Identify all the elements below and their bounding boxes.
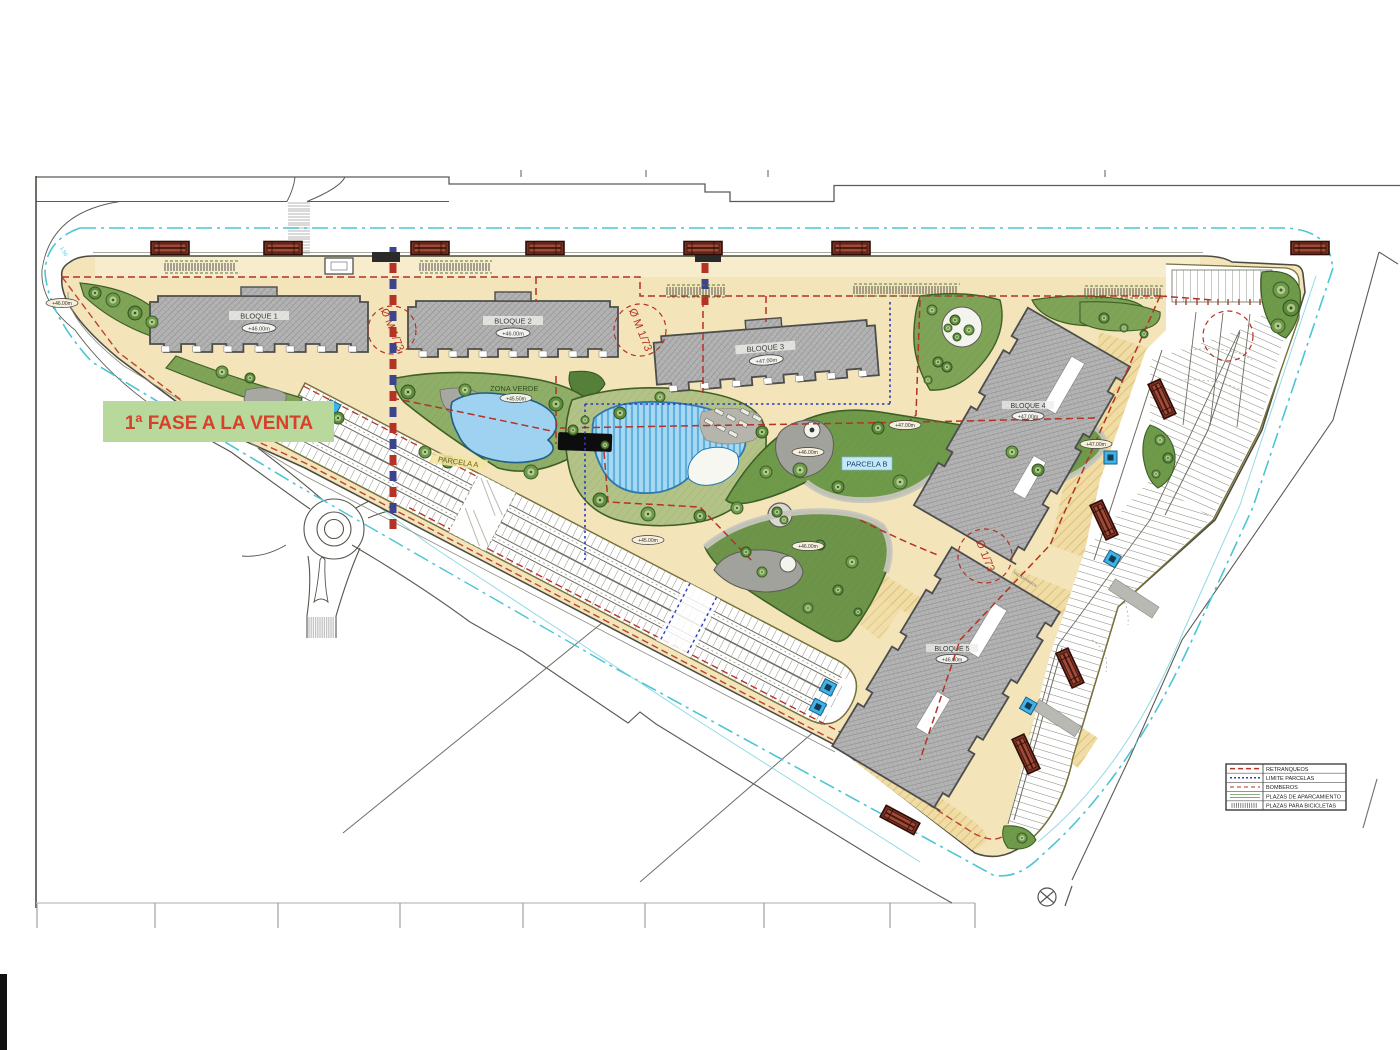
svg-text:+45.00m: +45.00m xyxy=(638,538,658,544)
svg-text:+46.00m: +46.00m xyxy=(52,301,72,307)
svg-text:BLOQUE 2: BLOQUE 2 xyxy=(494,317,532,326)
svg-text:RETRANQUEOS: RETRANQUEOS xyxy=(1266,767,1309,773)
svg-text:LIMITE PARCELAS: LIMITE PARCELAS xyxy=(1266,776,1315,782)
svg-text:BOMBEROS: BOMBEROS xyxy=(1266,785,1298,791)
svg-text:+47.00m: +47.00m xyxy=(895,423,915,429)
svg-text:BLOQUE 4: BLOQUE 4 xyxy=(1010,403,1045,410)
svg-text:+47.00m: +47.00m xyxy=(1086,442,1106,448)
svg-text:+46.00m: +46.00m xyxy=(798,544,818,550)
svg-text:+45.50m: +45.50m xyxy=(506,397,526,403)
svg-text:BLOQUE 5: BLOQUE 5 xyxy=(934,646,969,653)
svg-text:+46.00m: +46.00m xyxy=(502,332,524,338)
svg-text:1ª FASE A LA VENTA: 1ª FASE A LA VENTA xyxy=(125,413,314,434)
svg-text:PARCELA B: PARCELA B xyxy=(846,460,887,469)
svg-text:PLAZAS PARA BICICLETAS: PLAZAS PARA BICICLETAS xyxy=(1266,804,1336,810)
svg-text:+46.00m: +46.00m xyxy=(942,658,962,664)
svg-text:BLOQUE 1: BLOQUE 1 xyxy=(240,312,278,321)
svg-text:+46.00m: +46.00m xyxy=(798,450,818,456)
svg-text:PLAZAS DE APARCAMIENTO: PLAZAS DE APARCAMIENTO xyxy=(1266,794,1342,800)
svg-text:+46.00m: +46.00m xyxy=(248,327,270,333)
svg-text:ZONA VERDE: ZONA VERDE xyxy=(490,384,538,393)
